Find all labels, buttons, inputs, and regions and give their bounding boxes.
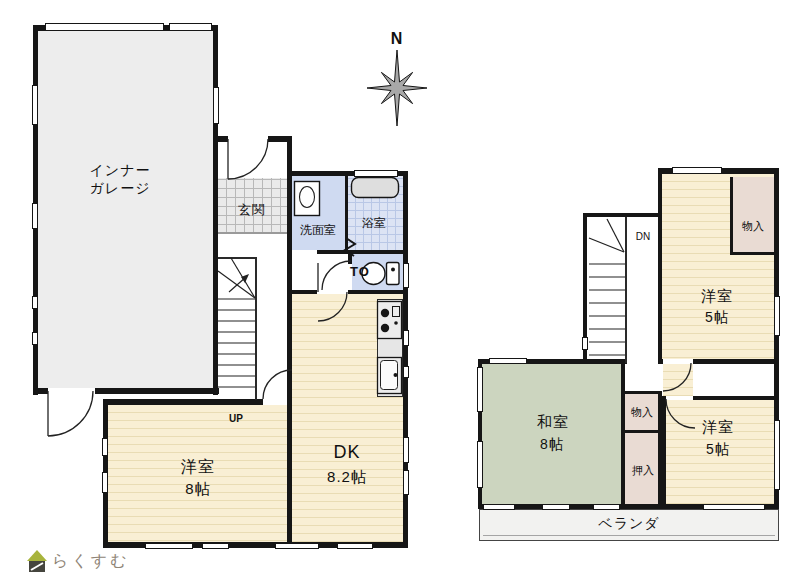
floor-plan: インナー ガレージ 玄関 洗面室 浴室 TO DK 8.2帖 洋室 8帖 UP … bbox=[0, 0, 796, 587]
entrance-label: 玄関 bbox=[238, 202, 266, 219]
stairs-down-label: DN bbox=[636, 230, 650, 243]
entrance-step-line bbox=[218, 232, 287, 234]
window bbox=[403, 366, 409, 378]
bedroom5-bottom-name: 洋室 bbox=[702, 417, 734, 437]
wall bbox=[348, 254, 352, 264]
window bbox=[32, 85, 38, 125]
wall bbox=[625, 391, 662, 394]
compass-north-label: N bbox=[391, 29, 404, 50]
wall bbox=[662, 396, 666, 504]
bedroom5-top-name: 洋室 bbox=[701, 286, 733, 306]
bedroom8-size-label: 8帖 bbox=[185, 479, 210, 499]
sliding-door bbox=[483, 504, 515, 510]
veranda-inner-line bbox=[483, 535, 775, 536]
wall bbox=[287, 136, 292, 548]
wall bbox=[345, 250, 408, 254]
wall bbox=[658, 174, 662, 217]
bedroom8-name-label: 洋室 bbox=[181, 457, 215, 478]
stair-edge bbox=[218, 257, 256, 259]
logo-text: らくすむ bbox=[52, 551, 130, 572]
stairs-up-arrowhead bbox=[241, 274, 249, 283]
stairs-1f bbox=[218, 258, 255, 387]
bedroom5-top-size: 5帖 bbox=[705, 308, 729, 326]
logo-house-icon bbox=[27, 550, 47, 572]
window bbox=[672, 167, 722, 174]
washitsu-name-label: 和室 bbox=[537, 412, 569, 432]
window bbox=[774, 296, 780, 336]
storage-top-label: 物入 bbox=[742, 219, 764, 233]
room-washroom bbox=[292, 176, 345, 250]
window bbox=[489, 358, 527, 364]
dk-name-label: DK bbox=[333, 441, 360, 464]
garage-door-arc bbox=[48, 391, 93, 436]
dk-size-label: 8.2帖 bbox=[327, 467, 367, 487]
compass-star bbox=[367, 50, 427, 126]
wall bbox=[348, 290, 408, 294]
wall bbox=[583, 213, 662, 217]
sliding-door bbox=[593, 504, 620, 510]
wall bbox=[33, 388, 48, 394]
front-door-arc bbox=[228, 139, 268, 179]
window bbox=[32, 332, 38, 345]
window bbox=[403, 470, 409, 495]
oshiire-label: 押入 bbox=[632, 463, 654, 477]
window bbox=[403, 263, 409, 288]
stair-edge bbox=[255, 257, 257, 400]
toilet-door-arc bbox=[322, 261, 351, 290]
sliding-door bbox=[542, 504, 570, 510]
storage-top-box bbox=[733, 177, 774, 252]
wall bbox=[693, 359, 775, 364]
window bbox=[202, 543, 229, 549]
window bbox=[32, 296, 38, 309]
wall bbox=[95, 388, 219, 394]
room-garage bbox=[38, 31, 213, 388]
window bbox=[145, 543, 193, 549]
window bbox=[102, 438, 108, 456]
storage-mid-label: 物入 bbox=[631, 405, 653, 419]
room-bathroom bbox=[348, 176, 403, 250]
wall bbox=[213, 25, 218, 395]
wall bbox=[730, 177, 733, 255]
window bbox=[275, 543, 319, 549]
window bbox=[102, 472, 108, 493]
garage-shutter bbox=[169, 23, 212, 31]
veranda-label: ベランダ bbox=[598, 514, 659, 532]
kitchen-counter bbox=[377, 299, 403, 397]
wall bbox=[317, 250, 345, 254]
wall bbox=[287, 290, 317, 294]
garage-label: インナー ガレージ bbox=[90, 161, 151, 197]
bedroom5-bottom-size: 5帖 bbox=[706, 440, 730, 458]
window bbox=[354, 170, 398, 177]
sliding-door bbox=[703, 504, 765, 510]
wall bbox=[103, 399, 263, 405]
stairs-2f bbox=[589, 219, 625, 355]
washitsu-size-label: 8帖 bbox=[540, 435, 564, 453]
window bbox=[582, 337, 588, 350]
hall-strip-2f bbox=[663, 364, 693, 396]
wall bbox=[693, 396, 775, 400]
window bbox=[403, 437, 409, 463]
toilet-label: TO bbox=[350, 264, 370, 281]
window bbox=[774, 420, 780, 490]
wall bbox=[658, 217, 662, 363]
wall bbox=[621, 363, 625, 504]
window bbox=[337, 543, 373, 549]
wall bbox=[730, 252, 775, 255]
wall bbox=[625, 430, 662, 433]
stairs-up-label: UP bbox=[229, 412, 243, 425]
window bbox=[213, 87, 219, 124]
window bbox=[403, 330, 409, 346]
wall bbox=[218, 136, 228, 142]
wall bbox=[658, 359, 663, 364]
window bbox=[477, 367, 483, 412]
window bbox=[32, 203, 38, 229]
stair-edge bbox=[625, 217, 627, 363]
room-washitsu bbox=[482, 363, 621, 504]
bathroom-label: 浴室 bbox=[362, 216, 386, 232]
garage-shutter bbox=[45, 23, 164, 31]
washroom-label: 洗面室 bbox=[300, 223, 336, 239]
wall bbox=[345, 176, 348, 250]
window bbox=[477, 441, 483, 488]
